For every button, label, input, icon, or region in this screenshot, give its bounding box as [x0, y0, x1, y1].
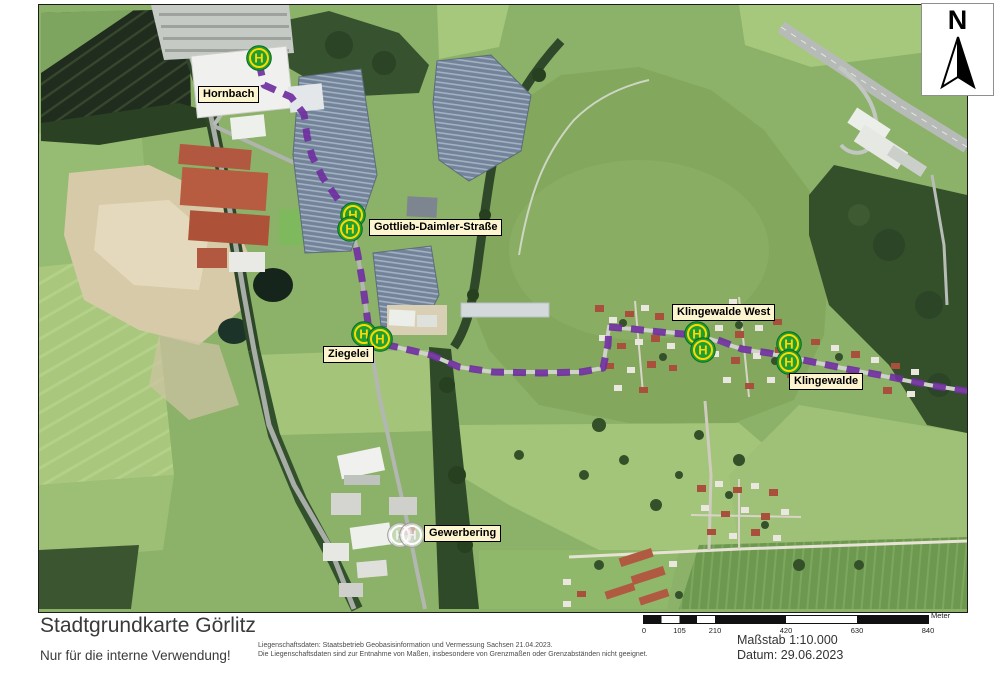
bus-stop-marker-gottlieb-daimler-stra-e[interactable]: H — [337, 216, 363, 242]
scale-bar: 0105210420630840 — [643, 615, 929, 624]
stop-label-klingewalde: Klingewalde — [789, 373, 863, 390]
north-arrow-icon — [936, 35, 980, 91]
svg-text:H: H — [698, 343, 707, 358]
map-date-text: Datum: 29.06.2023 — [737, 648, 843, 662]
svg-text:H: H — [254, 51, 263, 66]
stops-overlay: HHornbachHHGottlieb-Daimler-StraßeHHZieg… — [39, 5, 967, 612]
bus-stop-marker-gewerbering[interactable]: H — [399, 522, 425, 548]
bus-stop-marker-hornbach[interactable]: H — [246, 45, 272, 71]
scale-tick-0: 0 — [642, 626, 646, 635]
scale-tick-210: 210 — [709, 626, 722, 635]
stop-label-ziegelei: Ziegelei — [323, 346, 374, 363]
scale-tick-630: 630 — [851, 626, 864, 635]
stop-label-hornbach: Hornbach — [198, 86, 259, 103]
bus-stop-marker-klingewalde-west[interactable]: H — [690, 337, 716, 363]
stop-label-gewerbering: Gewerbering — [424, 525, 501, 542]
svg-text:H: H — [345, 222, 354, 237]
scale-tick-840: 840 — [922, 626, 935, 635]
map-scale-text: Maßstab 1:10.000 — [737, 633, 838, 647]
north-arrow-label: N — [948, 6, 968, 35]
aerial-map-canvas[interactable]: HHornbachHHGottlieb-Daimler-StraßeHHZieg… — [38, 4, 968, 613]
disclaimer-line-1: Liegenschaftsdaten: Staatsbetrieb Geobas… — [258, 641, 648, 650]
data-disclaimer: Liegenschaftsdaten: Staatsbetrieb Geobas… — [258, 641, 648, 659]
page-title: Stadtgrundkarte Görlitz — [40, 614, 256, 638]
svg-text:H: H — [407, 528, 416, 543]
usage-note: Nur für die interne Verwendung! — [40, 648, 231, 663]
stop-label-gottlieb-daimler-stra-e: Gottlieb-Daimler-Straße — [369, 219, 502, 236]
svg-text:H: H — [375, 332, 384, 347]
svg-text:H: H — [784, 355, 793, 370]
scale-unit-label: Meter — [931, 611, 950, 620]
bus-stop-marker-klingewalde[interactable]: H — [776, 349, 802, 375]
page: HHornbachHHGottlieb-Daimler-StraßeHHZieg… — [0, 0, 999, 681]
scale-tick-105: 105 — [673, 626, 686, 635]
disclaimer-line-2: Die Liegenschaftsdaten sind zur Entnahme… — [258, 650, 648, 659]
stop-label-klingewalde-west: Klingewalde West — [672, 304, 775, 321]
north-arrow: N — [921, 3, 994, 96]
